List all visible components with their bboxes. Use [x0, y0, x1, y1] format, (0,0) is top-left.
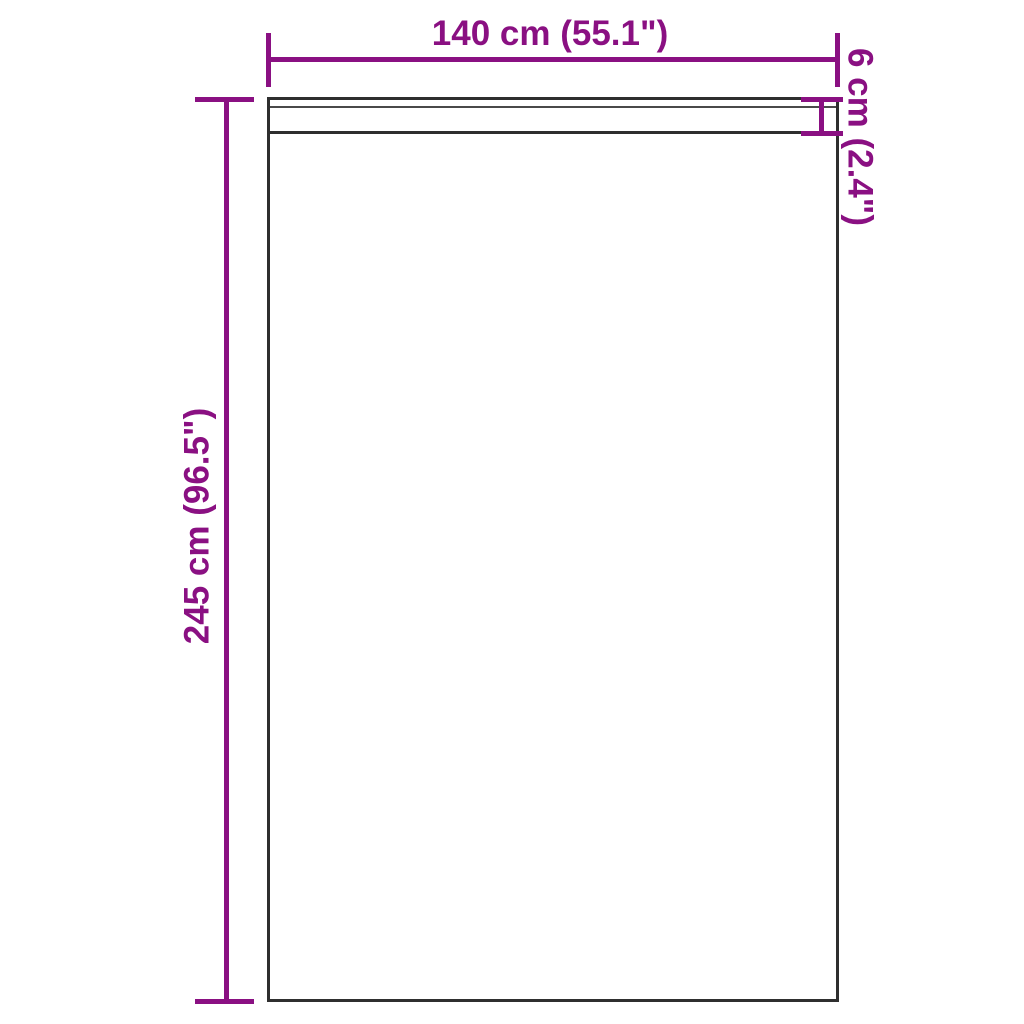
height-dimension-bottom-tick — [195, 999, 254, 1004]
header-height-dimension-line — [819, 97, 824, 136]
height-dimension-line — [224, 99, 229, 1002]
rod-pocket-fold-line — [270, 106, 836, 108]
height-dimension-label: 245 cm (96.5") — [180, 408, 215, 644]
curtain-dimension-diagram: 140 cm (55.1") 245 cm (96.5") 6 cm (2.4"… — [0, 0, 1024, 1024]
curtain-panel-outline — [267, 97, 839, 1002]
height-dimension-top-tick — [195, 97, 254, 102]
width-dimension-right-tick — [835, 33, 840, 87]
width-dimension-label: 140 cm (55.1") — [432, 16, 668, 51]
header-height-dimension-label: 6 cm (2.4") — [843, 48, 878, 226]
rod-pocket-stitch-line — [270, 131, 836, 134]
width-dimension-line — [268, 57, 838, 62]
width-dimension-left-tick — [266, 33, 271, 87]
